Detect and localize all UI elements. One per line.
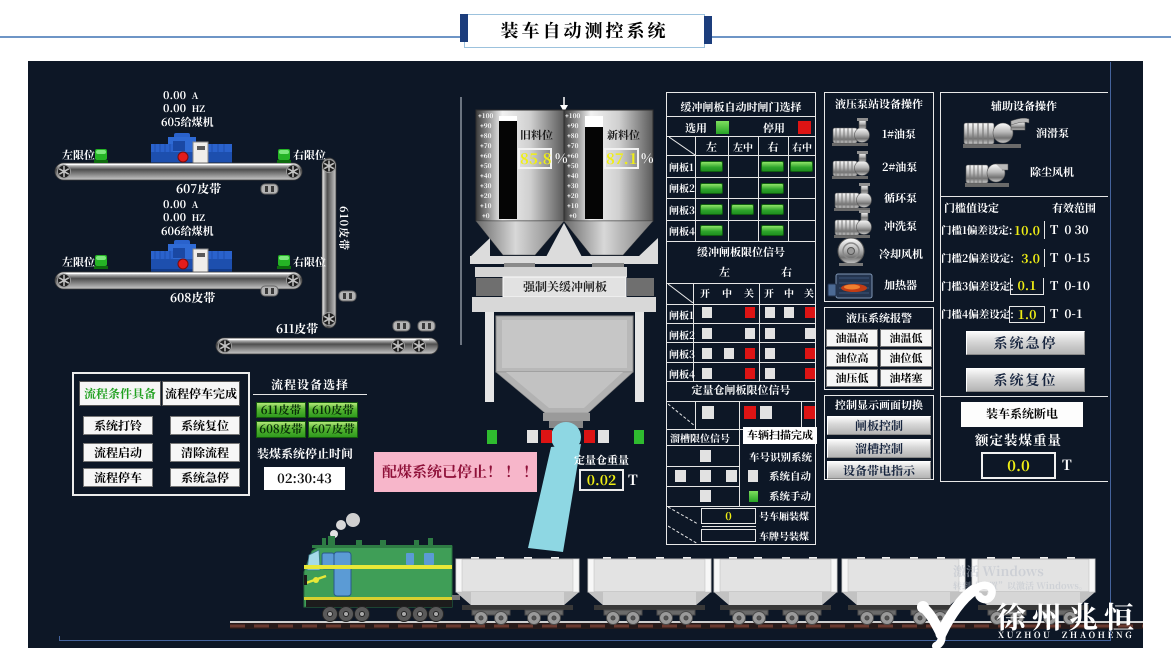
svg-text:+70: +70 <box>567 141 579 150</box>
svg-text:+60: +60 <box>567 151 579 160</box>
svg-text:+50: +50 <box>480 161 492 170</box>
svg-text:+40: +40 <box>567 171 579 180</box>
svg-text:+90: +90 <box>480 121 492 130</box>
svg-text:+90: +90 <box>567 121 579 130</box>
svg-text:+10: +10 <box>567 201 579 210</box>
svg-text:+20: +20 <box>567 191 579 200</box>
svg-text:+50: +50 <box>567 161 579 170</box>
svg-text:+0: +0 <box>569 211 577 220</box>
svg-text:+10: +10 <box>480 201 492 210</box>
svg-text:+60: +60 <box>480 151 492 160</box>
svg-text:+70: +70 <box>480 141 492 150</box>
svg-text:+30: +30 <box>480 181 492 190</box>
svg-text:+100: +100 <box>478 111 493 120</box>
svg-text:+30: +30 <box>567 181 579 190</box>
svg-text:+80: +80 <box>567 131 579 140</box>
svg-text:+80: +80 <box>480 131 492 140</box>
svg-text:+20: +20 <box>480 191 492 200</box>
svg-text:+0: +0 <box>482 211 490 220</box>
svg-text:+100: +100 <box>565 111 580 120</box>
svg-text:+40: +40 <box>480 171 492 180</box>
